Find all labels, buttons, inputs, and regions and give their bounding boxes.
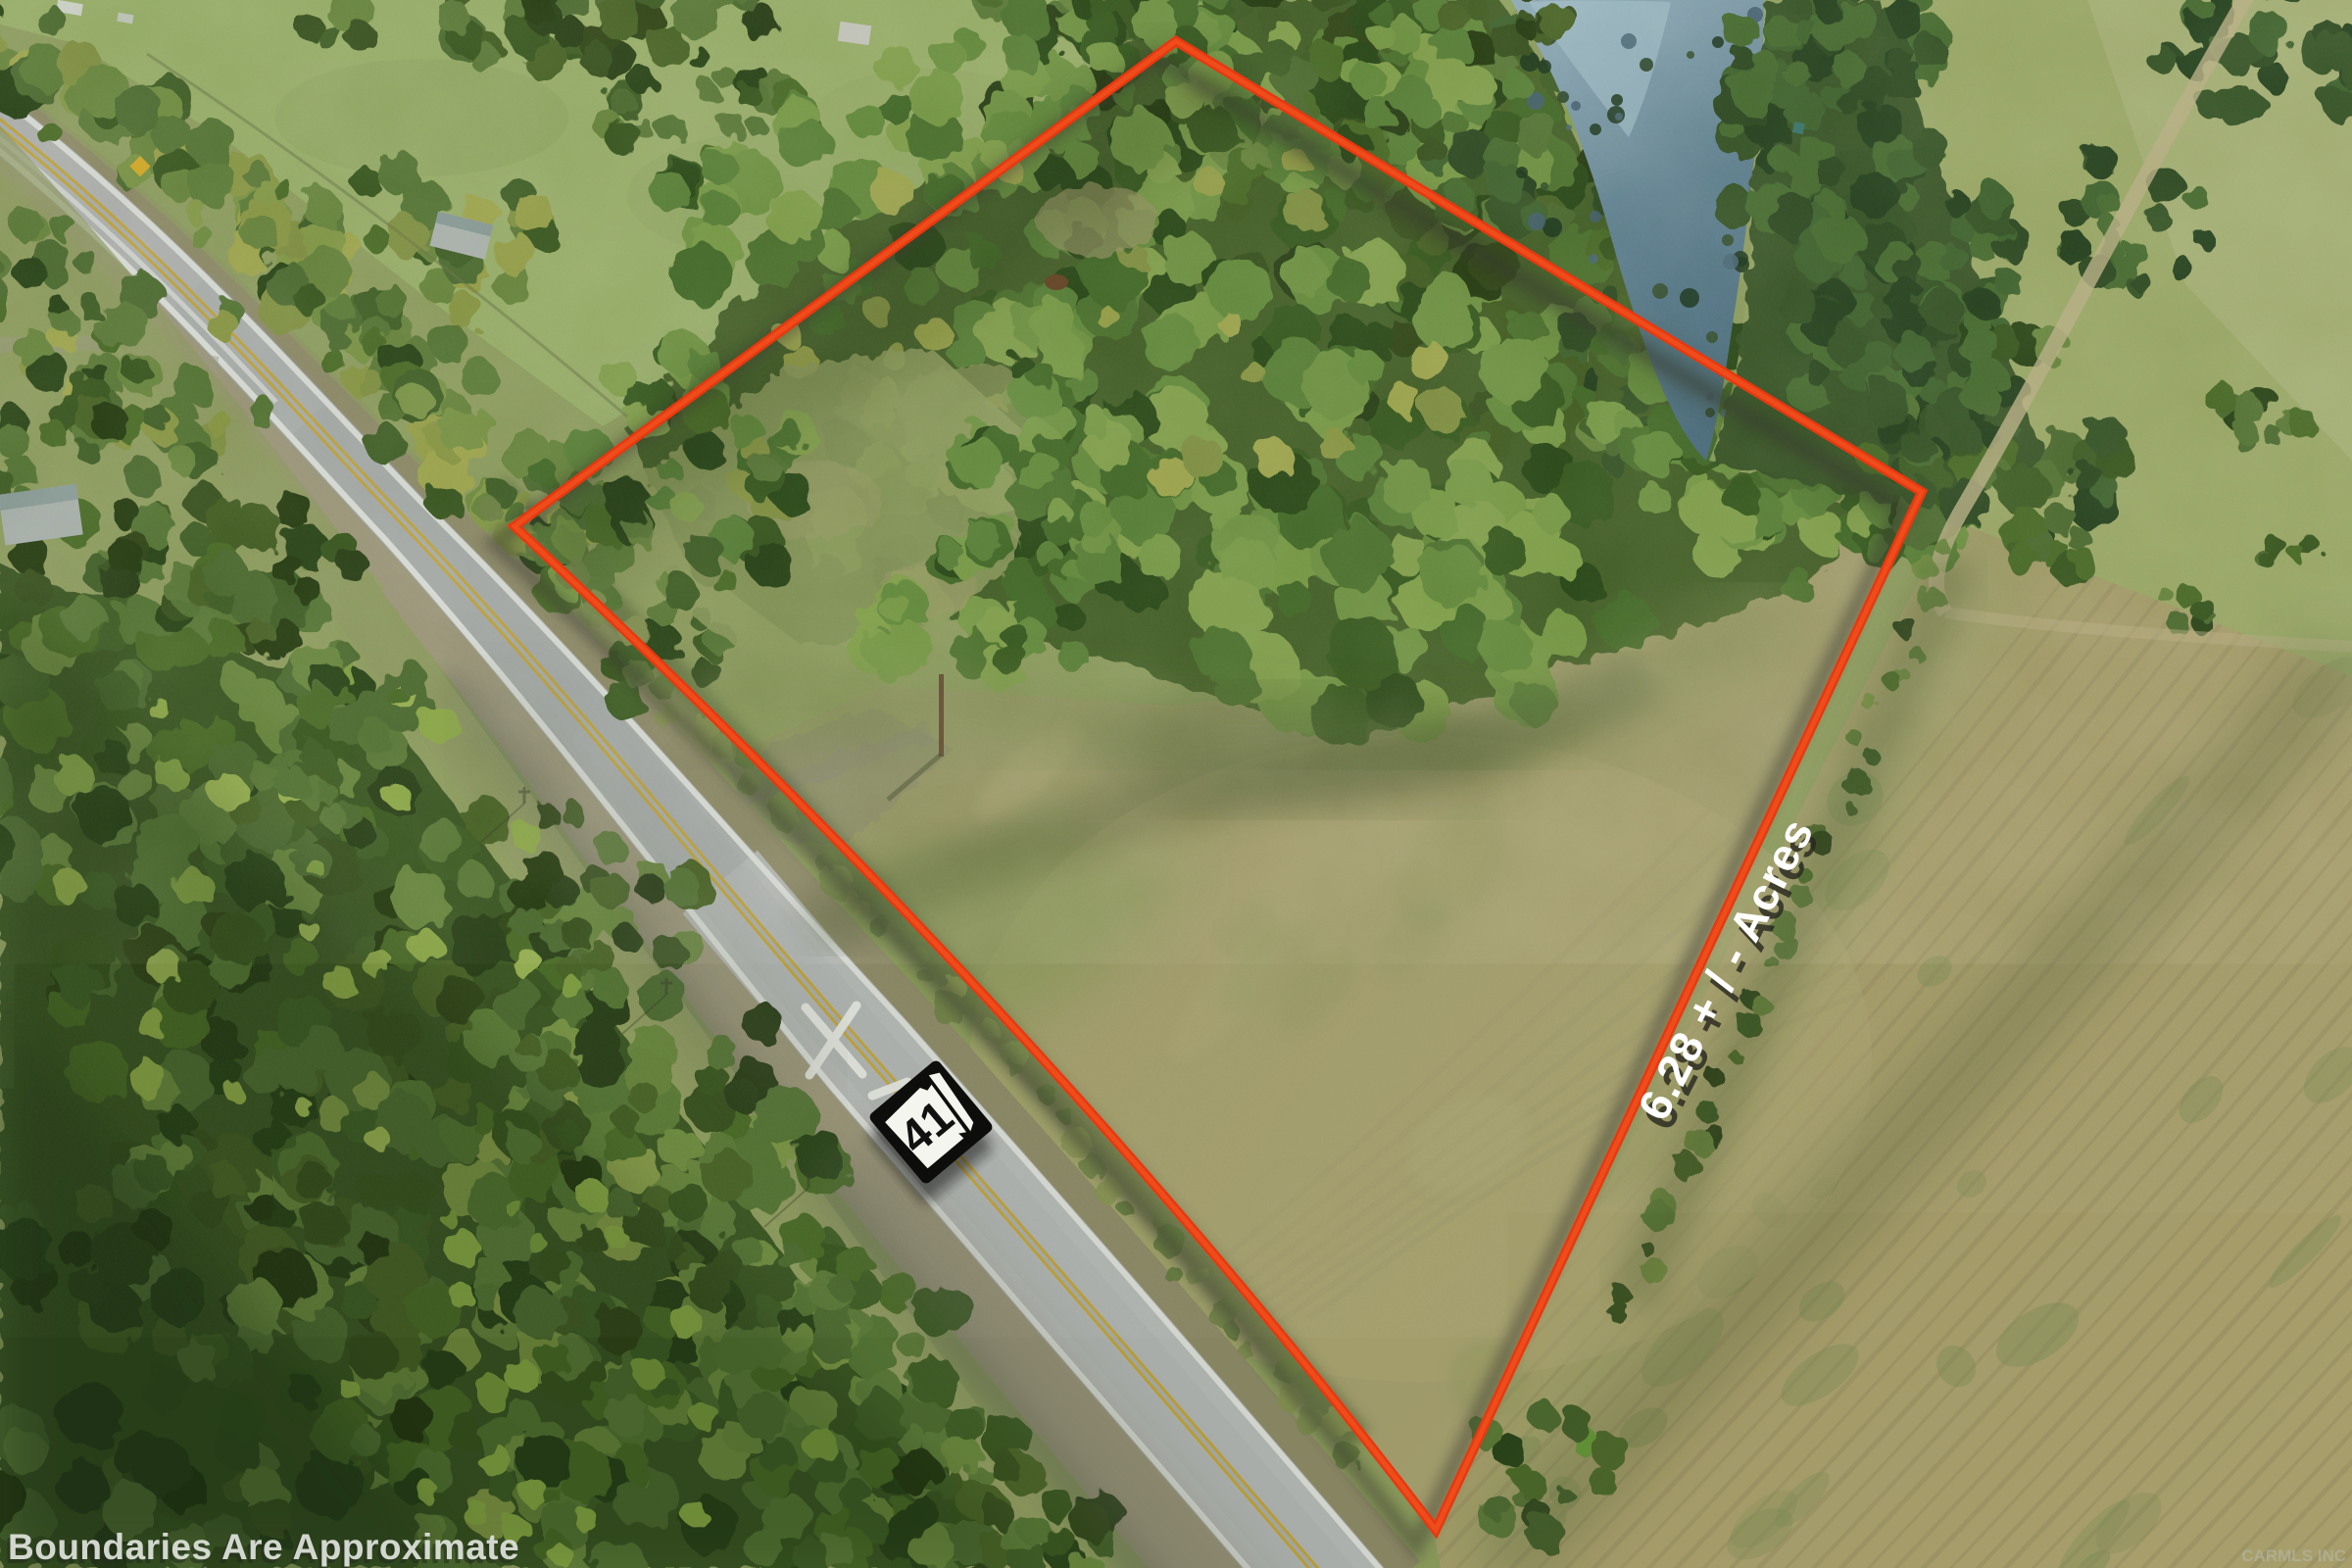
svg-text:CARMLS INC: CARMLS INC xyxy=(2241,1546,2346,1565)
svg-text:Boundaries Are Approximate: Boundaries Are Approximate xyxy=(8,1527,519,1567)
